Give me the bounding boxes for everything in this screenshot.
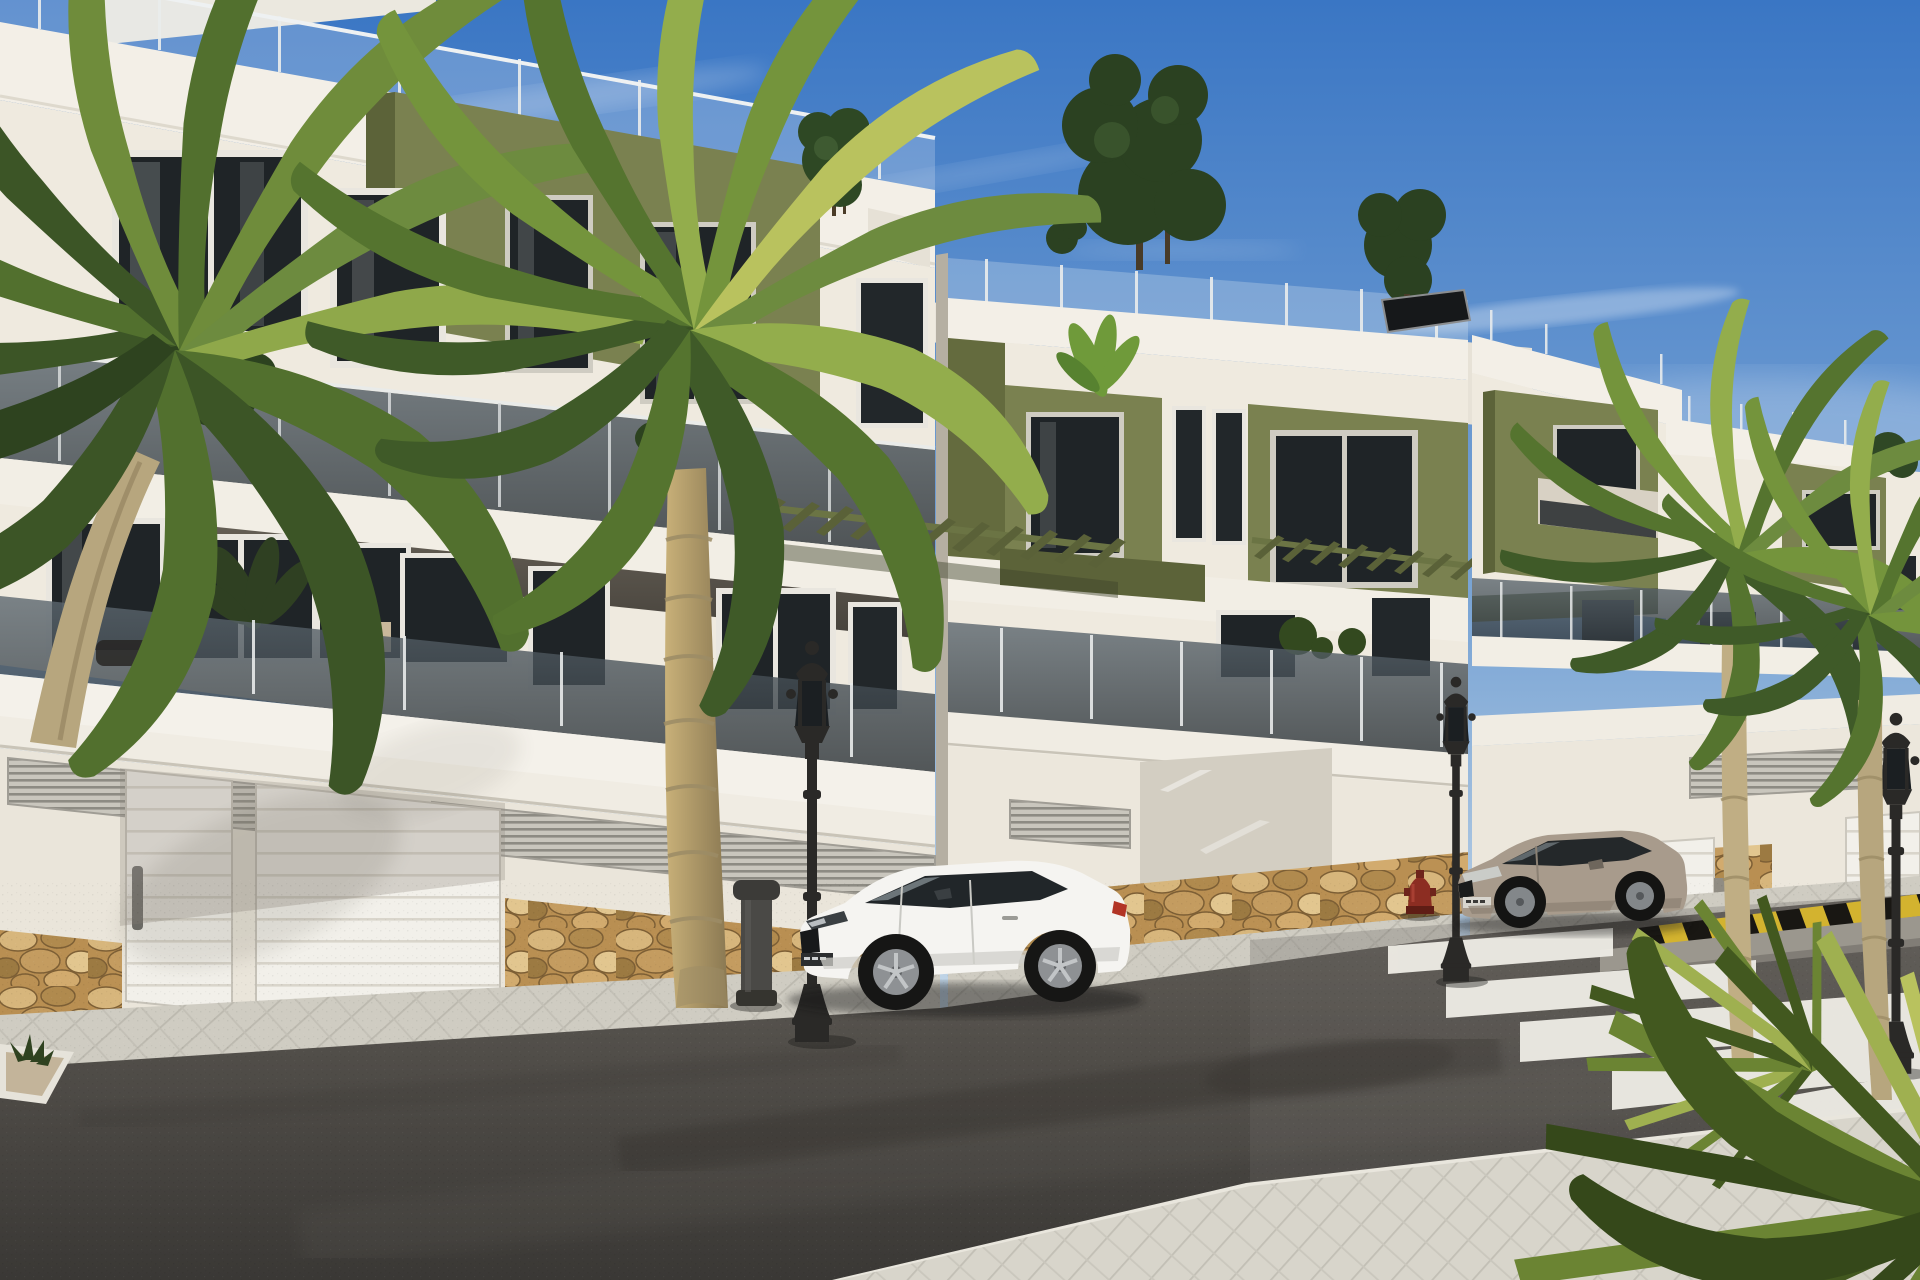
wheel (1615, 871, 1665, 921)
wheel (1024, 930, 1096, 1002)
front-grille (800, 928, 820, 954)
window (1172, 406, 1206, 542)
car-shadow (787, 983, 1143, 1017)
wheel (858, 934, 934, 1010)
window (1212, 409, 1246, 545)
wheel (1494, 876, 1546, 928)
architectural-render (0, 0, 1920, 1280)
